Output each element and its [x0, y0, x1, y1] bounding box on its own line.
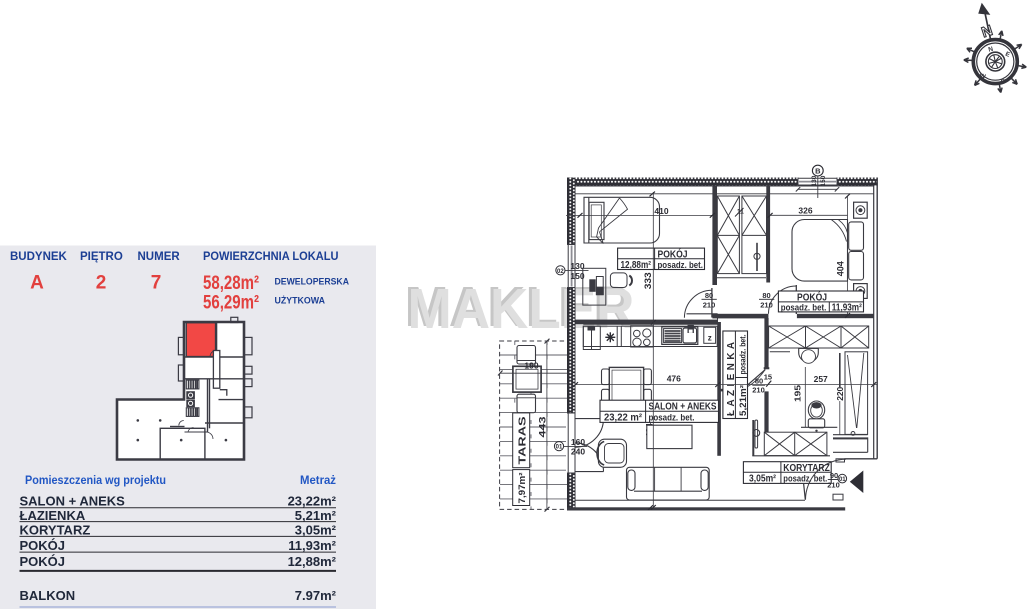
svg-text:Pomieszczenia wg projektu: Pomieszczenia wg projektu	[25, 475, 166, 487]
svg-text:12,88m²: 12,88m²	[621, 260, 652, 271]
svg-text:Metraż: Metraż	[300, 475, 336, 487]
svg-text:TARAS: TARAS	[517, 417, 529, 465]
svg-text:NUMER: NUMER	[138, 251, 181, 263]
svg-text:7: 7	[151, 273, 162, 294]
svg-text:160: 160	[571, 437, 585, 447]
svg-text:ŁAZIENKA: ŁAZIENKA	[20, 508, 86, 523]
svg-text:80: 80	[705, 291, 713, 300]
svg-text:ŁAZIENKA: ŁAZIENKA	[726, 342, 737, 416]
svg-text:7,97m²: 7,97m²	[517, 473, 527, 504]
svg-text:80: 80	[755, 376, 763, 385]
svg-text:2: 2	[96, 273, 107, 294]
svg-text:190: 190	[524, 360, 538, 370]
svg-text:posadz. bet.: posadz. bet.	[783, 473, 827, 484]
svg-text:3,05m²: 3,05m²	[295, 523, 337, 538]
svg-text:12,88m²: 12,88m²	[288, 554, 337, 569]
svg-text:z: z	[708, 334, 712, 343]
svg-text:90: 90	[830, 471, 838, 480]
svg-text:5,21m²: 5,21m²	[295, 508, 337, 523]
svg-text:A: A	[30, 273, 44, 294]
svg-text:257: 257	[814, 374, 828, 384]
svg-text:N: N	[988, 46, 995, 54]
svg-text:01: 01	[556, 445, 563, 451]
svg-text:E: E	[1004, 51, 1011, 59]
svg-text:56,29m²: 56,29m²	[203, 293, 259, 314]
svg-text:POWIERZCHNIA LOKALU: POWIERZCHNIA LOKALU	[203, 251, 339, 263]
svg-text:01: 01	[839, 477, 846, 483]
svg-text:BALKON: BALKON	[20, 588, 76, 603]
svg-text:N: N	[980, 23, 995, 41]
svg-text:210: 210	[703, 300, 716, 309]
svg-text:195: 195	[792, 385, 802, 402]
svg-text:11,93m²: 11,93m²	[832, 302, 863, 313]
svg-text:3,05m²: 3,05m²	[749, 473, 777, 484]
svg-text:210: 210	[752, 386, 765, 395]
svg-text:POKÓJ: POKÓJ	[658, 247, 688, 260]
svg-text:210: 210	[760, 300, 773, 309]
svg-text:02: 02	[557, 269, 564, 275]
svg-text:POKÓJ: POKÓJ	[20, 538, 66, 553]
svg-text:5,21m²: 5,21m²	[738, 385, 748, 416]
svg-text:7.97m²: 7.97m²	[295, 588, 337, 603]
svg-text:404: 404	[835, 261, 845, 276]
svg-text:15: 15	[764, 372, 772, 381]
svg-text:posadz. bet.: posadz. bet.	[649, 413, 695, 424]
svg-text:326: 326	[798, 206, 812, 216]
svg-text:150: 150	[820, 175, 827, 186]
svg-text:BUDYNEK: BUDYNEK	[10, 251, 68, 263]
svg-text:210: 210	[827, 481, 840, 490]
svg-text:KORYTARZ: KORYTARZ	[20, 523, 91, 538]
svg-text:PIĘTRO: PIĘTRO	[80, 251, 123, 263]
svg-text:443: 443	[538, 417, 549, 438]
svg-text:80: 80	[762, 291, 770, 300]
svg-text:220: 220	[835, 387, 845, 401]
svg-text:KORYTARZ: KORYTARZ	[783, 462, 830, 474]
svg-text:11: 11	[737, 209, 744, 216]
svg-text:posadz. bet.: posadz. bet.	[738, 335, 748, 375]
svg-text:POKÓJ: POKÓJ	[20, 554, 66, 569]
svg-text:333: 333	[643, 272, 653, 289]
svg-text:23,22 m²: 23,22 m²	[604, 413, 643, 424]
svg-text:DEWELOPERSKA: DEWELOPERSKA	[275, 277, 350, 288]
svg-text:SALON + ANEKS: SALON + ANEKS	[649, 401, 717, 413]
svg-text:410: 410	[654, 206, 668, 216]
svg-text:B: B	[815, 166, 821, 175]
svg-text:476: 476	[667, 373, 681, 383]
svg-text:posadz. bet.: posadz. bet.	[781, 302, 827, 313]
svg-text:240: 240	[571, 447, 585, 457]
svg-text:130: 130	[811, 175, 818, 186]
svg-text:UŻYTKOWA: UŻYTKOWA	[275, 296, 326, 307]
svg-text:23,22m²: 23,22m²	[288, 494, 337, 509]
svg-text:11,93m²: 11,93m²	[288, 538, 336, 553]
svg-text:posadz. bet.: posadz. bet.	[658, 260, 704, 271]
svg-text:58,28m²: 58,28m²	[203, 273, 259, 294]
svg-text:SALON + ANEKS: SALON + ANEKS	[20, 494, 126, 509]
